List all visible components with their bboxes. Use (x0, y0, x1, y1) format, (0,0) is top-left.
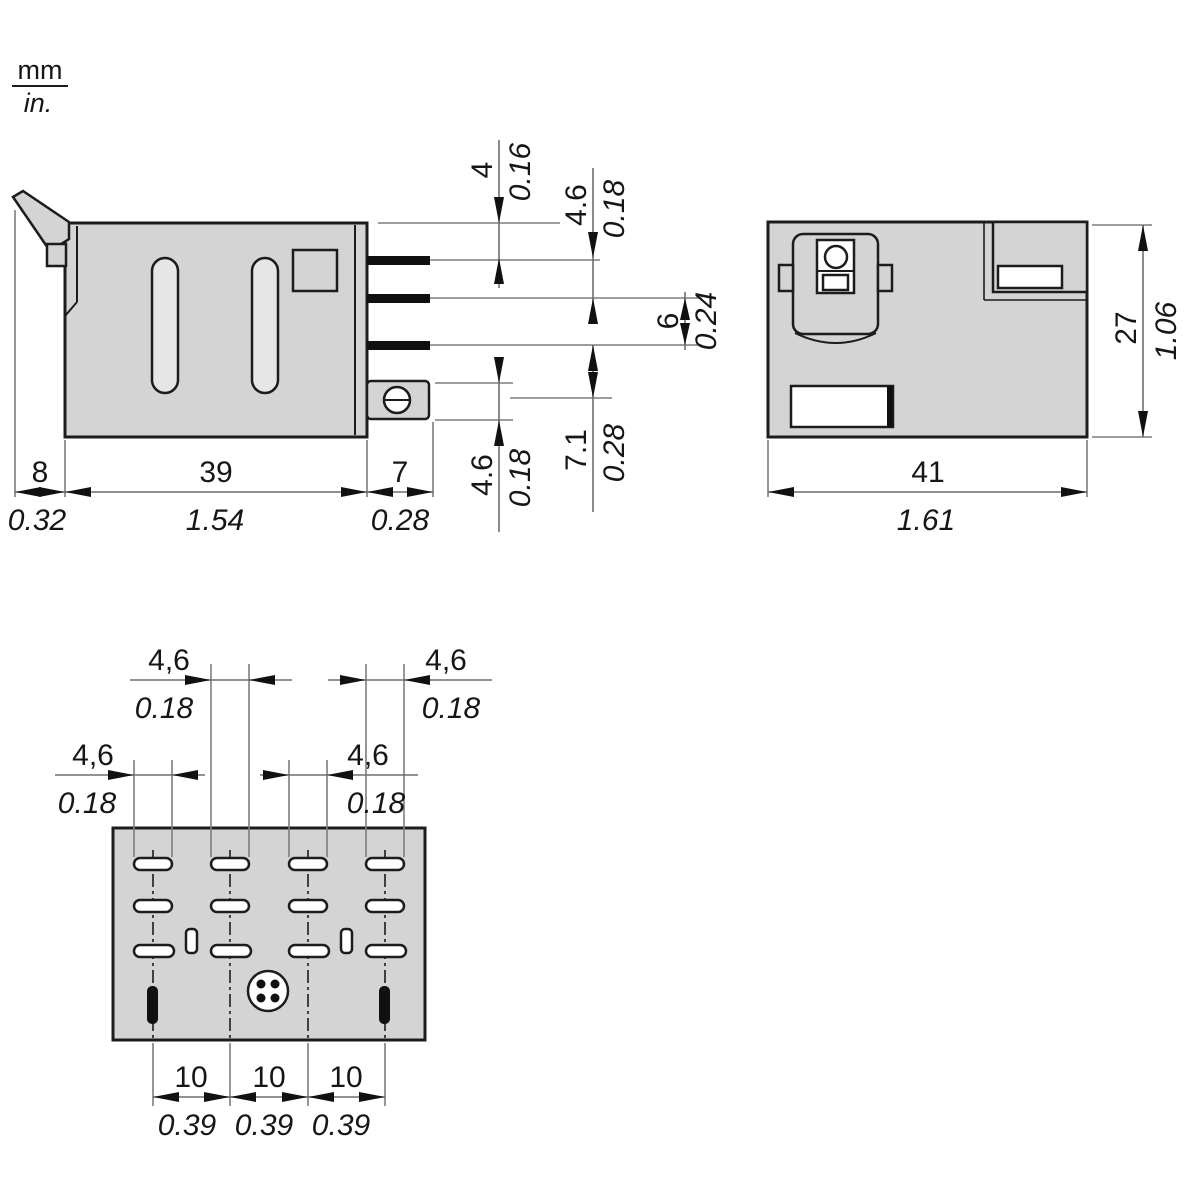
dim-arrow (359, 1092, 385, 1102)
dim-p1-mm: 10 (174, 1061, 207, 1094)
slot-r3c3 (289, 945, 329, 957)
dim-p3-mm: 10 (329, 1061, 362, 1094)
clip-tab-right (878, 265, 892, 291)
slot-r3c1 (134, 945, 174, 957)
dim-arrow (1138, 225, 1148, 251)
keying-dot (257, 994, 266, 1003)
slot-r3c2 (211, 945, 251, 957)
side-pin-dimensions: 4 0.16 4.6 0.18 6 0.24 7.1 0.28 4.6 (466, 140, 723, 532)
retaining-clip-foot (47, 244, 66, 266)
side-square-window (293, 250, 337, 291)
keying-dot (257, 980, 266, 989)
side-slot-right (252, 258, 278, 393)
dim-arrow (494, 357, 504, 383)
key-slot-right (341, 929, 352, 953)
slot-r1c4 (366, 858, 404, 870)
dim-6-in: 0.24 (690, 292, 723, 350)
bottom-view: 4,6 0.18 4,6 0.18 4,6 0.18 4,6 0.18 (55, 644, 492, 1142)
dim-8-in: 0.32 (8, 504, 67, 537)
dim-4-in: 0.16 (504, 142, 537, 201)
top-view: 41 1.61 27 1.06 (768, 222, 1183, 537)
keying-boss (248, 971, 288, 1011)
dim-arrow (1061, 487, 1087, 497)
dim-arrow (263, 770, 289, 780)
pin-3 (367, 341, 430, 350)
side-slot-left (152, 258, 178, 393)
unit-mm-label: mm (18, 55, 63, 85)
clip-tab-left (779, 265, 793, 291)
dim-arrow (65, 487, 91, 497)
dim-8-mm: 8 (32, 456, 49, 489)
slot-r1c1 (134, 858, 172, 870)
retaining-clip-lever (13, 191, 69, 251)
unit-in-label: in. (24, 88, 53, 118)
dim-arrow (340, 675, 366, 685)
corner-panel-window (998, 266, 1062, 288)
slot-r2c2 (211, 900, 249, 912)
dim-71-mm: 7.1 (560, 429, 593, 471)
dim-46c2-mm: 4,6 (148, 644, 190, 677)
dim-p2-mm: 10 (252, 1061, 285, 1094)
dim-46c4-mm: 4,6 (425, 644, 467, 677)
slot-r2c4 (366, 900, 404, 912)
marking-window (791, 386, 893, 427)
dim-p2-in: 0.39 (235, 1109, 294, 1142)
dim-4-mm: 4 (466, 162, 499, 179)
keying-dot (271, 994, 280, 1003)
dim-46c1-mm: 4,6 (72, 739, 114, 772)
dim-46c2-in: 0.18 (135, 692, 194, 725)
bottom-pitch-dimensions: 10 10 10 0.39 0.39 0.39 (153, 1043, 385, 1142)
slot-r1c3 (289, 858, 327, 870)
dim-71-in: 0.28 (598, 423, 631, 482)
dim-46top-in: 0.18 (598, 179, 631, 238)
side-view: 8 0.32 39 1.54 7 0.28 4 0.16 4.6 0.18 6 (8, 140, 723, 537)
dim-41-mm: 41 (911, 456, 944, 489)
slot-r2c1 (134, 900, 172, 912)
dim-46c3-in: 0.18 (347, 787, 406, 820)
dim-46lug-mm: 4.6 (466, 454, 499, 496)
dim-arrow (249, 675, 275, 685)
dim-arrow (588, 372, 598, 398)
dim-p1-in: 0.39 (158, 1109, 217, 1142)
coil-pin-left (147, 986, 158, 1024)
pin-2 (367, 294, 430, 303)
dim-46c1-in: 0.18 (58, 787, 117, 820)
side-width-dimensions: 8 0.32 39 1.54 7 0.28 (8, 456, 433, 537)
dim-39-in: 1.54 (186, 504, 244, 537)
dimension-drawing: mm in. (0, 0, 1200, 1200)
dim-46c4-in: 0.18 (422, 692, 481, 725)
dim-arrow (172, 770, 198, 780)
pin-1 (367, 256, 430, 265)
dim-arrow (204, 1092, 230, 1102)
dim-46top-mm: 4.6 (560, 184, 593, 226)
dim-arrow (1138, 411, 1148, 437)
marking-window-edge (887, 386, 893, 427)
slot-r3c4 (366, 945, 406, 957)
dim-arrow (494, 197, 504, 223)
drawing-svg: mm in. (0, 0, 1200, 1200)
key-slot-left (186, 929, 197, 953)
dim-46c3-mm: 4,6 (347, 739, 389, 772)
dim-arrow (367, 487, 393, 497)
slot-r1c2 (211, 858, 249, 870)
dim-39-mm: 39 (199, 456, 232, 489)
dim-7-in: 0.28 (371, 504, 430, 537)
dim-27-mm: 27 (1110, 311, 1143, 344)
dim-41-in: 1.61 (897, 504, 955, 537)
dim-arrow (588, 298, 598, 324)
dim-arrow (494, 258, 504, 284)
dim-arrow (341, 487, 367, 497)
slot-r2c3 (289, 900, 327, 912)
clip-button-hole (825, 246, 847, 268)
dim-p3-in: 0.39 (312, 1109, 371, 1142)
dim-arrow (282, 1092, 308, 1102)
bottom-slot-dimensions: 4,6 0.18 4,6 0.18 4,6 0.18 4,6 0.18 (55, 644, 492, 857)
dim-arrow (588, 345, 598, 371)
dim-27-in: 1.06 (1150, 301, 1183, 360)
clip-button-inner (823, 275, 848, 290)
dim-46lug-in: 0.18 (504, 448, 537, 507)
dim-7-mm: 7 (392, 456, 409, 489)
dim-arrow (407, 487, 433, 497)
keying-dot (271, 980, 280, 989)
dim-arrow (494, 420, 504, 446)
dim-6-mm: 6 (652, 313, 685, 330)
dim-arrow (768, 487, 794, 497)
units-legend: mm in. (12, 55, 68, 118)
coil-pin-right (379, 986, 390, 1024)
dim-arrow (588, 232, 598, 258)
